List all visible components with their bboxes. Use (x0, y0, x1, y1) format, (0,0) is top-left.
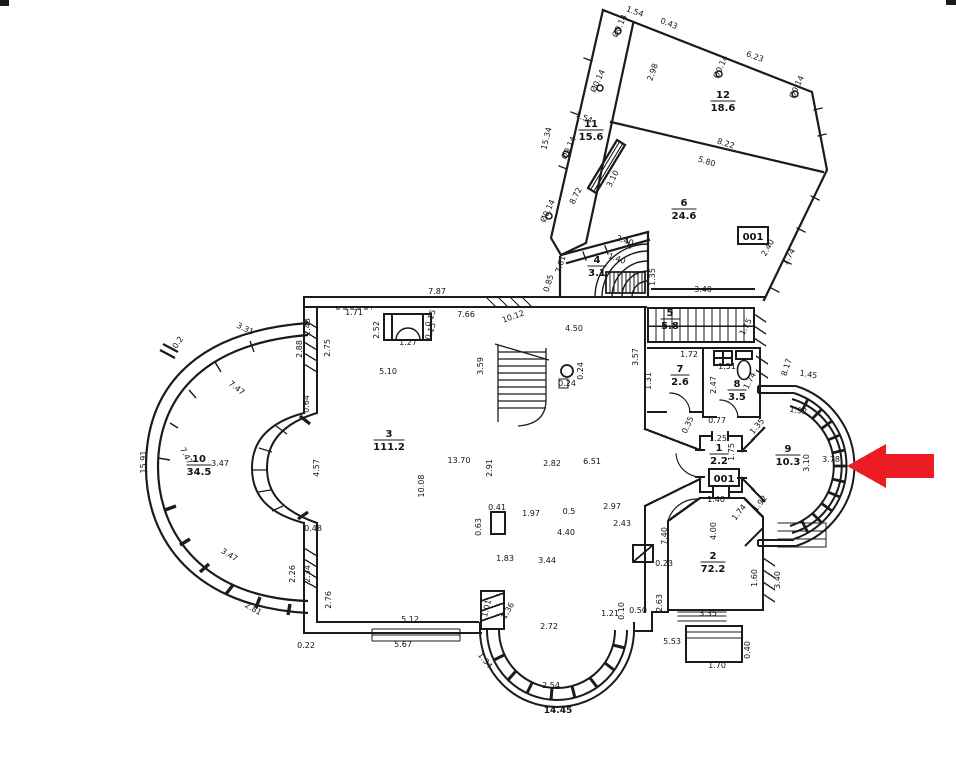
dimension-label: 1.74 (742, 371, 758, 391)
dimension-label: 0.40 (743, 641, 752, 659)
dimension-label: 2.34 (303, 565, 312, 583)
dimension-label: 3.40 (773, 571, 782, 589)
red-arrow-marker (847, 444, 934, 488)
dimension-label: 5.10 (379, 367, 397, 376)
dimension-label: 10.12 (501, 309, 526, 325)
dimension-label: 15.34 (539, 126, 553, 150)
round-room-walls (146, 323, 308, 613)
dimension-label: 5.53 (663, 637, 681, 646)
dimension-label: 0.77 (708, 416, 726, 425)
dimension-label: Ø0.14 (787, 74, 806, 100)
room-area: 5.8 (661, 321, 679, 332)
dimension-label: 2.81 (243, 600, 263, 617)
room-area: 2.2 (710, 456, 728, 467)
dimension-label: 5.12 (401, 615, 419, 624)
dimension-label: 1.92 (751, 494, 769, 514)
dimension-label: 1.27 (399, 338, 417, 347)
dimension-label: 0.5 (563, 507, 576, 516)
dimension-label: 2.72 (540, 622, 558, 631)
dimension-label: 0.64 (302, 395, 311, 413)
dimension-label: 1.74 (780, 247, 797, 267)
dimension-label: 3.10 (605, 169, 621, 189)
dimension-label: 5.80 (697, 155, 717, 169)
dimension-label: 1.40 (707, 495, 725, 504)
dimension-label: 10.08 (417, 475, 426, 498)
room-number: 3 (386, 429, 393, 440)
small-duct (633, 545, 653, 562)
room-2-walls (668, 498, 826, 662)
room-number: 2 (710, 551, 717, 562)
room-number: 5 (667, 308, 674, 319)
dimension-label: 15.91 (139, 451, 148, 474)
round-room-window-hatch (165, 506, 290, 615)
room-area: 72.2 (701, 564, 726, 575)
dimension-label: 7.61 (554, 254, 568, 274)
room-number: 8 (734, 379, 741, 390)
dimension-label: 0.22 (297, 641, 315, 650)
dimension-label: 1.45 (799, 369, 818, 381)
dimension-label: 0.63 (474, 518, 483, 536)
dimension-label: 3.59 (476, 357, 485, 375)
dimension-label: 7.66 (457, 310, 475, 319)
dimension-label: 2.76 (324, 591, 333, 609)
dimension-label: 0.23 (655, 559, 673, 568)
dimension-label: 0.85 (542, 273, 556, 293)
dimension-label: 7.47 (227, 379, 247, 397)
dimension-label: 2.98 (645, 62, 660, 82)
room-area: 111.2 (373, 442, 405, 453)
dimension-label: 2.82 (543, 459, 561, 468)
dimension-label: 1.83 (496, 554, 514, 563)
dimension-label: 3.44 (538, 556, 556, 565)
room-area: 15.6 (579, 132, 604, 143)
dimension-label: 0.43 (659, 16, 679, 31)
dimension-label: 3.47 (211, 459, 229, 468)
column (561, 365, 573, 377)
dimension-label: 13.70 (448, 456, 471, 465)
dimension-label: 1.31 (644, 372, 653, 390)
vestibule-walls (645, 428, 764, 506)
dimension-label: 2.91 (485, 459, 494, 477)
floor-plan-page: 14.45 1.540.436.23Ø0.14Ø0.14Ø0.14Ø0.14Ø0… (0, 0, 956, 771)
dimension-label: 1.74 (730, 503, 748, 523)
dimension-label: 1.71 (345, 308, 363, 317)
room-number: 9 (785, 444, 792, 455)
room-area: 2.6 (671, 377, 689, 388)
dimension-label: 5.67 (394, 640, 412, 649)
dimension-label: 4.40 (557, 528, 575, 537)
scan-artifacts (0, 0, 956, 6)
room-3-details (336, 309, 653, 562)
dimension-label: 3.78 (822, 455, 840, 464)
dimension-label: 1.75 (727, 443, 736, 461)
dimension-label: 1.72 (680, 350, 698, 359)
dimension-label: 2.97 (603, 502, 621, 511)
bow-window-walls (252, 413, 317, 523)
dimension-label: 3.40 (694, 285, 712, 294)
dimension-label: 1.25 (709, 434, 727, 443)
dimension-label: 2.47 (709, 376, 718, 394)
pilaster (491, 512, 505, 534)
room-area: 34.5 (187, 467, 212, 478)
dimension-label: Ø0.14 (588, 68, 607, 94)
room-number: 7 (677, 364, 684, 375)
dimension-label: 7.87 (428, 287, 446, 296)
room-area: 3.1 (588, 268, 606, 279)
dimension-label: 2.75 (323, 339, 332, 357)
room-number: 10 (192, 454, 206, 465)
dimension-label: 1.35 (748, 417, 766, 436)
dimension-label: Ø0.14 (711, 54, 730, 80)
floor-plan-drawing: 14.45 1.540.436.23Ø0.14Ø0.14Ø0.14Ø0.14Ø0… (0, 0, 956, 771)
dimension-label: 0.35 (680, 415, 696, 435)
total-width-label: 14.45 (544, 706, 572, 716)
dimension-label: 1.97 (522, 509, 540, 518)
bottom-bay-window (480, 622, 634, 707)
dimension-label: 3.57 (631, 348, 640, 366)
room-area: 3.5 (728, 392, 746, 403)
dimension-label: 4.50 (565, 324, 583, 333)
wall-bottom-left (304, 622, 481, 633)
dimension-label: 0.50 (629, 606, 647, 615)
dimension-label: 3.47 (219, 546, 239, 563)
dimension-label: 2.63 (655, 594, 664, 612)
room-area: 18.6 (711, 103, 736, 114)
dimension-label: Ø0.14 (610, 13, 629, 39)
round-room-window-ticks (158, 341, 254, 460)
dimension-label: 6.51 (583, 457, 601, 466)
dimension-label: 1.35 (648, 268, 657, 286)
dimension-label: 2.43 (303, 318, 312, 336)
dimension-label: 1.70 (708, 661, 726, 670)
room-number: 1 (716, 443, 723, 454)
dimension-label: 0.10 (617, 602, 626, 620)
dimension-label: 1.51 (718, 362, 736, 371)
dimension-label: 2.52 (372, 321, 381, 339)
dimension-label: 2.43 (613, 519, 631, 528)
room-number: 12 (716, 90, 730, 101)
unit-number: 001 (714, 474, 735, 485)
dimension-label: 6.23 (745, 49, 765, 64)
interior-stair (495, 344, 549, 426)
dimension-label: 4.57 (312, 459, 321, 477)
dimension-label: 8.17 (780, 357, 794, 377)
dimension-label: 1.15 (738, 317, 754, 337)
dimension-label: 8.72 (568, 186, 584, 206)
room-area: 24.6 (672, 211, 697, 222)
dimension-label: 2.26 (288, 565, 297, 583)
dimension-label: 0.48 (304, 524, 322, 533)
room-area: 10.3 (776, 457, 801, 468)
dimension-label: 0.41 (488, 503, 506, 512)
dimension-label: 2.88 (295, 340, 304, 358)
dimension-label: 2.54 (542, 681, 560, 690)
dimension-label: Ø0.14 (559, 135, 578, 161)
dimension-label: 0.24 (558, 379, 576, 388)
dimension-label: 4.00 (709, 522, 718, 540)
room-number: 6 (681, 198, 688, 209)
dimension-label: 3.10 (802, 454, 811, 472)
unit-number: 001 (743, 232, 764, 243)
walls-main-block (304, 289, 764, 633)
room-number: 4 (594, 255, 601, 266)
dimension-label: 3.35 (699, 609, 717, 618)
dimension-label: 0.24 (576, 362, 585, 380)
dimension-label: 1.60 (750, 569, 759, 587)
dimension-label: 1.92 (789, 405, 808, 416)
room-number: 11 (584, 119, 598, 130)
dimension-label: 7.40 (660, 527, 669, 545)
